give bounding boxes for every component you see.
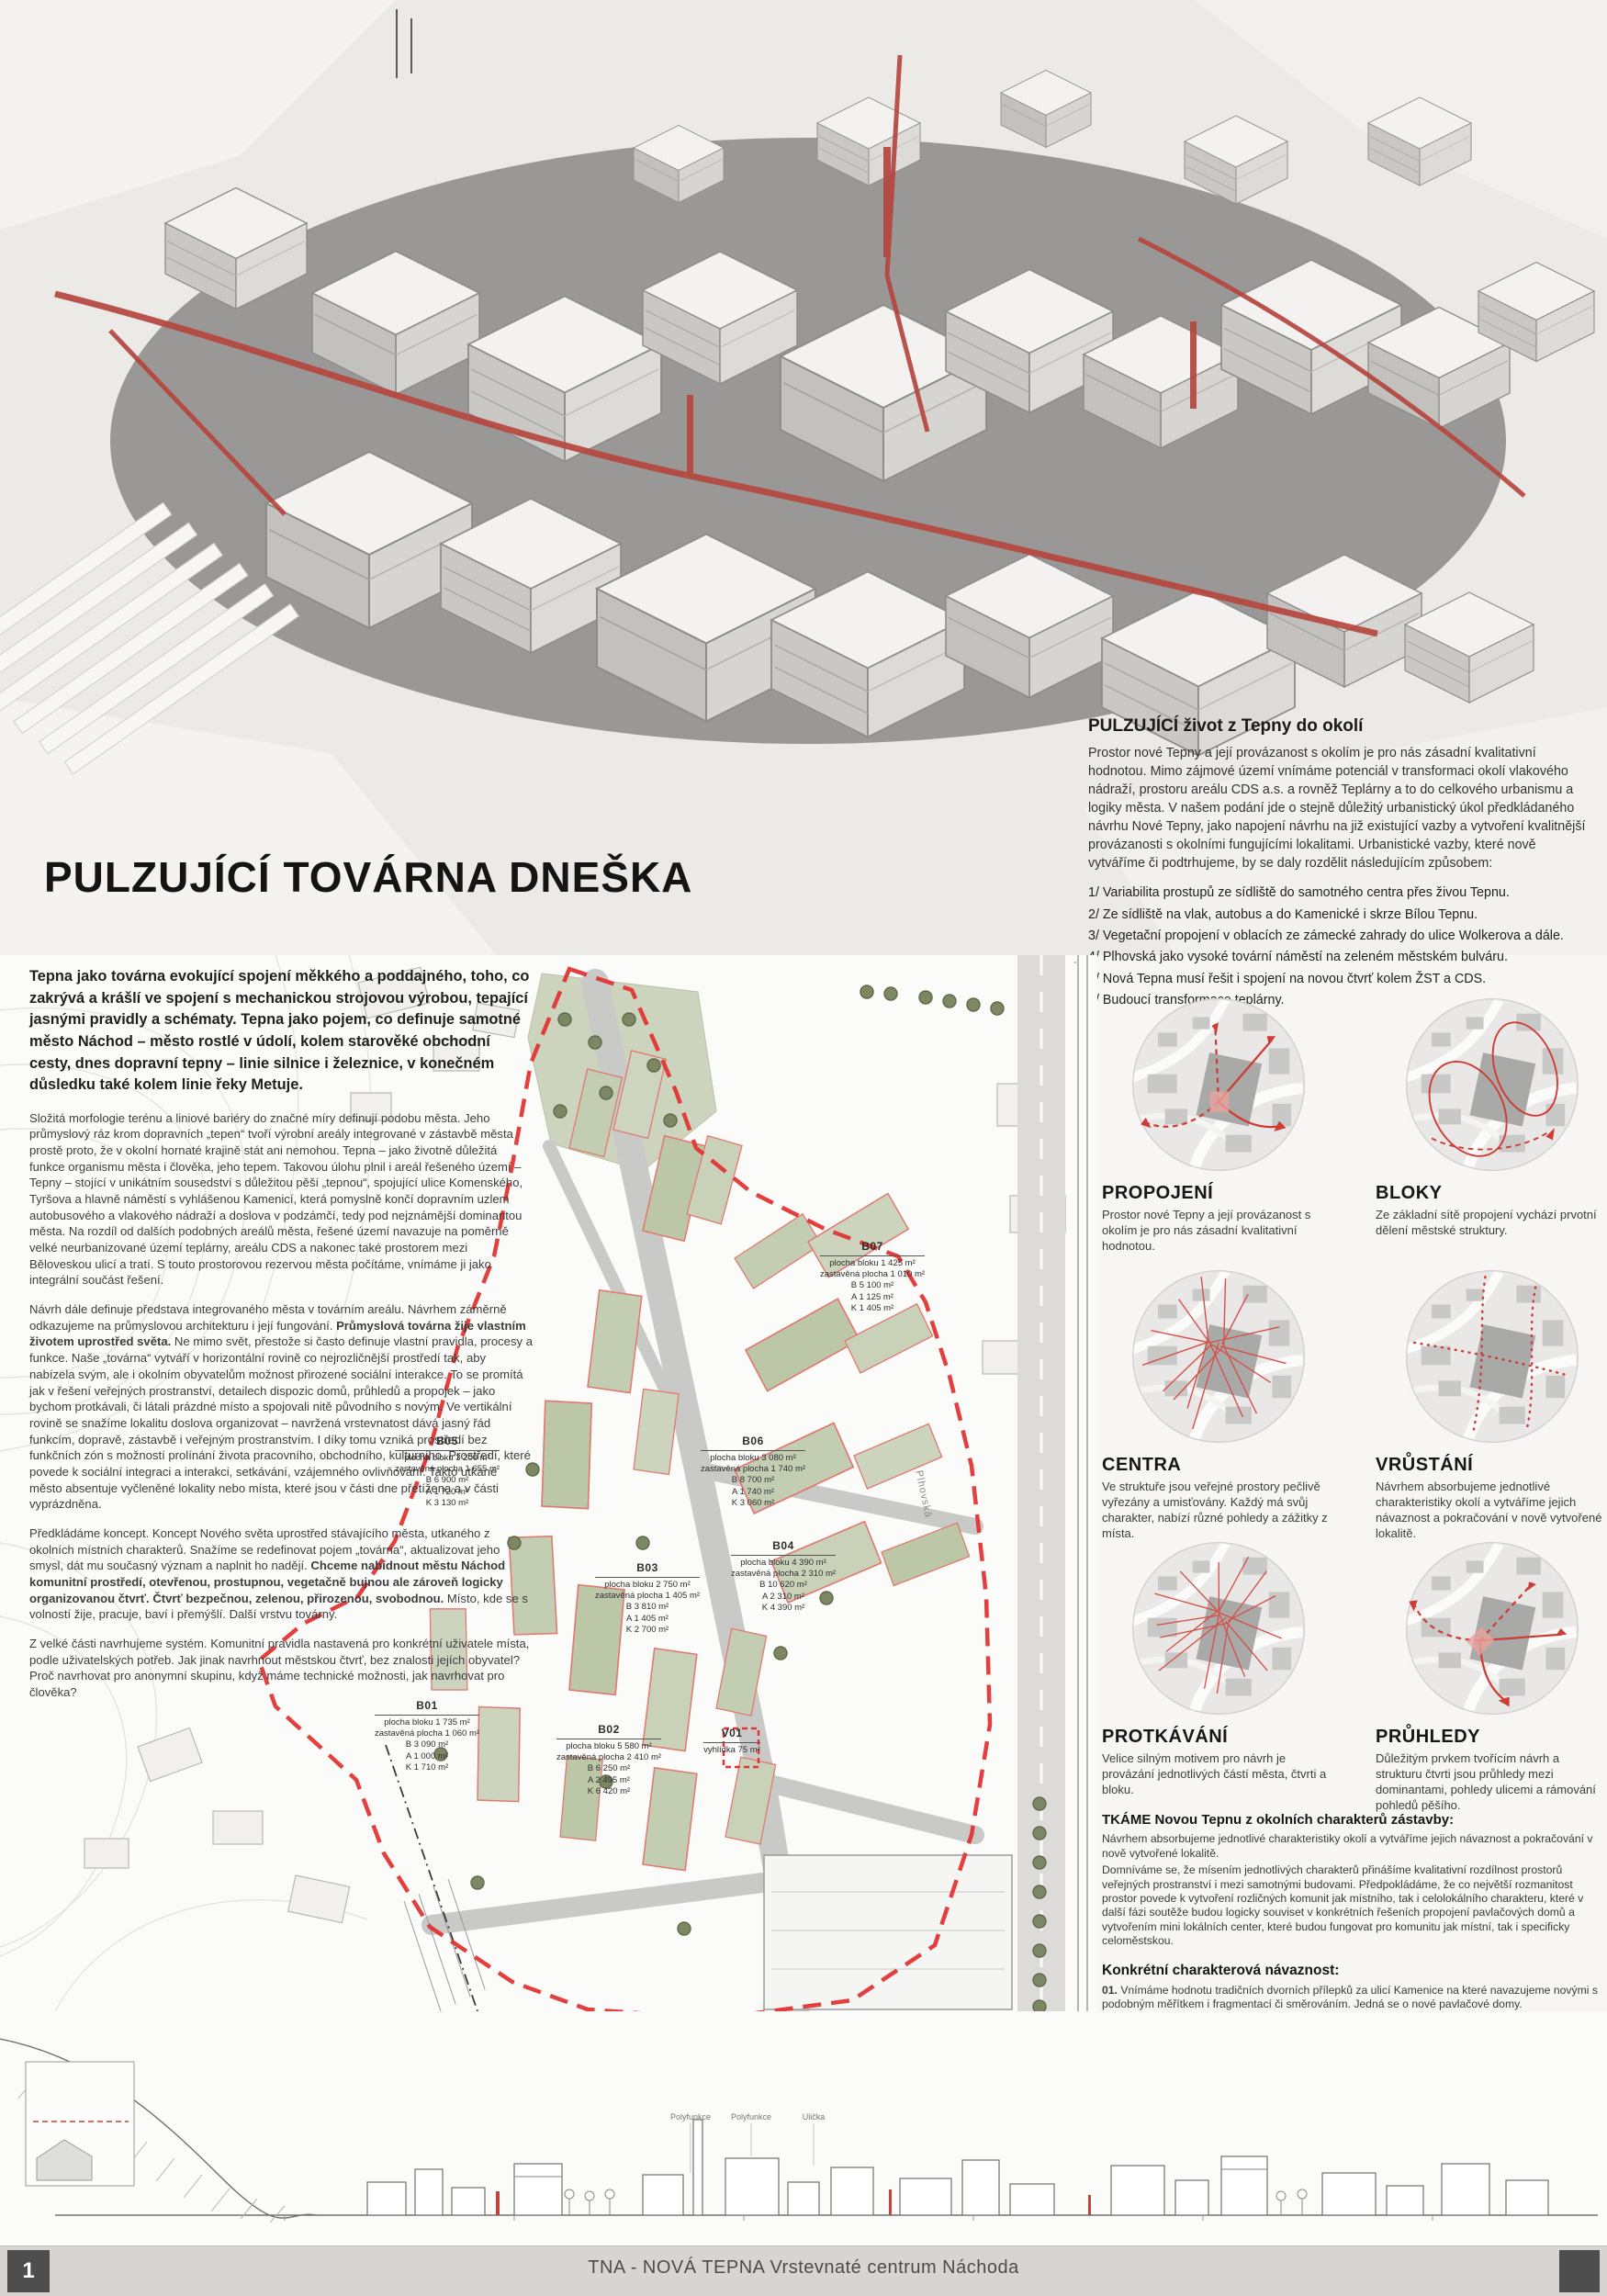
diagram-vrustani: VRŮSTÁNÍ Návrhem absorbujeme jednotlivé …: [1376, 1266, 1607, 1537]
paragraph: Složitá morfologie terénu a liniové bari…: [29, 1110, 533, 1289]
diagram-label: PROTKÁVÁNÍ: [1102, 1727, 1335, 1748]
hero-text-block: PULZUJÍCÍ život z Tepny do okolí Prostor…: [1088, 716, 1593, 1012]
corner-marker: [1559, 2250, 1600, 2292]
hero-heading: PULZUJÍCÍ život z Tepny do okolí: [1088, 716, 1593, 737]
diagram-label: BLOKY: [1376, 1183, 1607, 1204]
diagram-label: VRŮSTÁNÍ: [1376, 1455, 1607, 1476]
paragraph: Předkládáme koncept. Koncept Nového svět…: [29, 1525, 533, 1623]
svg-text:Ulička: Ulička: [803, 2112, 826, 2122]
diagram-pruhledy: PRŮHLEDY Důležitým prvkem tvořícím návrh…: [1376, 1537, 1607, 1809]
hero-list-item: 5/ Nová Tepna musí řešit i spojení na no…: [1088, 969, 1593, 990]
hero-list-item: 1/ Variabilita prostupů ze sídliště do s…: [1088, 883, 1593, 904]
diagram-description: Ve struktuře jsou veřejné prostory pečli…: [1102, 1480, 1335, 1542]
concept-diagrams: PROPOJENÍ Prostor nové Tepny a její prov…: [1102, 994, 1607, 1809]
diagram-label: PRŮHLEDY: [1376, 1727, 1607, 1748]
hero-list-item: 2/ Ze sídliště na vlak, autobus a do Kam…: [1088, 905, 1593, 926]
hero-list: 1/ Variabilita prostupů ze sídliště do s…: [1088, 883, 1593, 1012]
diagram-circle: [1401, 994, 1583, 1176]
hero-list-item: 3/ Vegetační propojení v oblacích ze zám…: [1088, 926, 1593, 947]
diagram-circle: [1128, 1537, 1309, 1719]
diagram-label: CENTRA: [1102, 1455, 1335, 1476]
page-title: PULZUJÍCÍ TOVÁRNA DNEŠKA: [44, 852, 692, 902]
section-detail-box: [26, 2062, 134, 2186]
tkame-paragraph: Návrhem absorbujeme jednotlivé charakter…: [1102, 1832, 1607, 1861]
diagram-circle: [1128, 994, 1309, 1176]
diagram-bloky: BLOKY Ze základní sítě propojení vychází…: [1376, 994, 1607, 1266]
tkame-paragraph: Domníváme se, že mísením jednotlivých ch…: [1102, 1863, 1607, 1949]
diagram-circle: [1401, 1266, 1583, 1447]
paragraph: Návrh dále definuje představa integrovan…: [29, 1301, 533, 1513]
diagram-description: Velice silným motivem pro návrh je prová…: [1102, 1751, 1335, 1798]
svg-text:Polyfunkce: Polyfunkce: [670, 2112, 711, 2122]
diagram-propojeni: PROPOJENÍ Prostor nové Tepny a její prov…: [1102, 994, 1335, 1266]
diagram-circle: [1128, 1266, 1309, 1447]
navaznost-item: 01. Vnímáme hodnotu tradičních dvorních …: [1102, 1984, 1607, 2012]
tkame-heading: TKÁME Novou Tepnu z okolních charakterů …: [1102, 1811, 1607, 1829]
plan-lookout-v01-label: V01vyhlídka 75 m²: [703, 1727, 760, 1756]
plan-block-b03: B03plocha bloku 2 750 m² zastavěná ploch…: [595, 1561, 700, 1636]
plan-block-b06: B06plocha bloku 3 080 m² zastavěná ploch…: [701, 1435, 805, 1509]
section-drawing: Polyfunkce Polyfunkce Ulička: [0, 2011, 1607, 2245]
plan-block-b07: B07plocha bloku 1 425 m² zastavěná ploch…: [820, 1240, 925, 1314]
plan-block-b04: B04plocha bloku 4 390 m² zastavěná ploch…: [731, 1539, 836, 1614]
paragraph: Z velké části navrhujeme systém. Komunit…: [29, 1636, 533, 1701]
hero-list-item: 4/ Plhovská jako vysoké tovární náměstí …: [1088, 947, 1593, 968]
diagram-circle: [1401, 1537, 1583, 1719]
lead-paragraph: Tepna jako továrna evokující spojení měk…: [29, 966, 533, 1097]
left-text-column: Tepna jako továrna evokující spojení měk…: [29, 966, 533, 1714]
diagram-description: Důležitým prvkem tvořícím návrh a strukt…: [1376, 1751, 1607, 1814]
diagram-description: Návrhem absorbujeme jednotlivé charakter…: [1376, 1480, 1607, 1542]
retained-hall: [764, 1855, 1012, 2009]
project-title: TNA - NOVÁ TEPNA Vrstevnaté centrum Nách…: [0, 2257, 1607, 2279]
diagram-description: Ze základní sítě propojení vychází prvot…: [1376, 1208, 1607, 1239]
competition-poster: PULZUJÍCÍ TOVÁRNA DNEŠKA PULZUJÍCÍ život…: [0, 0, 1607, 2296]
diagram-label: PROPOJENÍ: [1102, 1183, 1335, 1204]
plan-block-b02: B02plocha bloku 5 580 m² zastavěná ploch…: [556, 1723, 661, 1797]
diagram-centra: CENTRA Ve struktuře jsou veřejné prostor…: [1102, 1266, 1335, 1537]
page-number: 1: [7, 2250, 50, 2292]
diagram-protkavani: PROTKÁVÁNÍ Velice silným motivem pro náv…: [1102, 1537, 1335, 1809]
navaznost-heading: Konkrétní charakterová návaznost:: [1102, 1962, 1607, 1980]
diagram-description: Prostor nové Tepny a její provázanost s …: [1102, 1208, 1335, 1255]
hero-body: Prostor nové Tepny a její provázanost s …: [1088, 744, 1593, 872]
svg-text:Polyfunkce: Polyfunkce: [731, 2112, 771, 2122]
